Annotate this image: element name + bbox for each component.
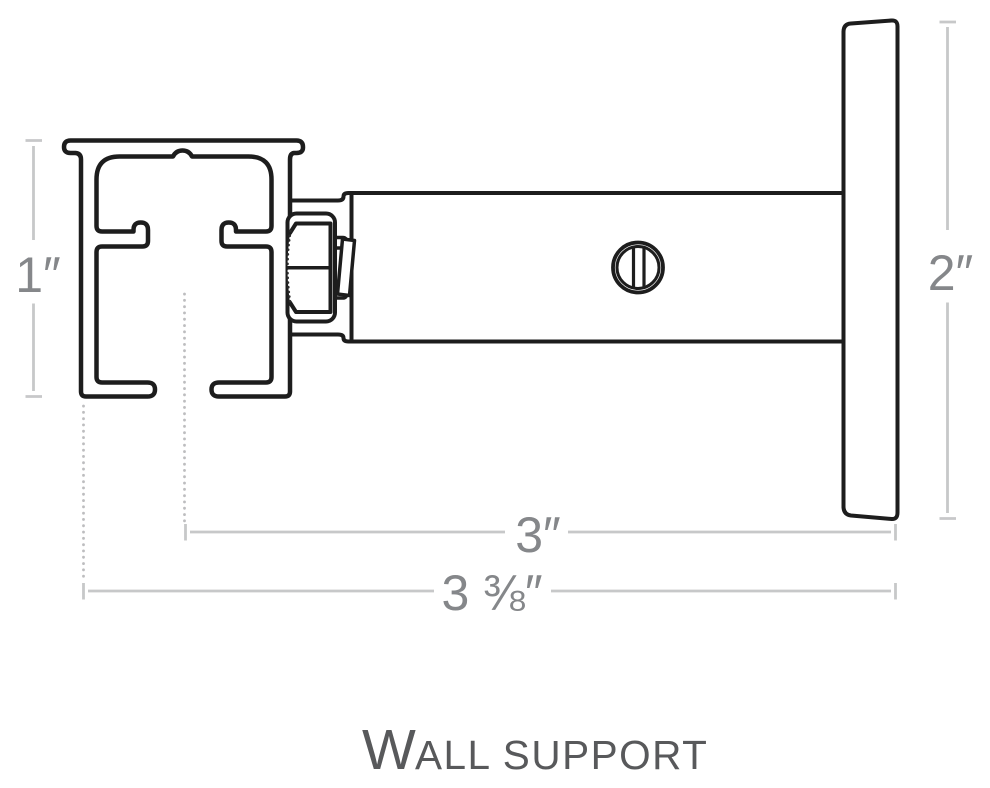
wall-support-technical-drawing: 1″ 2″ 3″ 3 ⅜″ W ALL SUPPORT — [0, 0, 990, 788]
arm-bottom-edge — [289, 335, 845, 342]
rail-outline — [64, 141, 303, 397]
dim-label-plate-height: 2″ — [928, 245, 974, 301]
bolt-shaft — [338, 239, 355, 296]
wall-plate-outline — [844, 20, 898, 519]
adjustment-screw — [613, 243, 663, 293]
arm-top-edge — [289, 193, 845, 201]
dim-label-rail-height: 1″ — [15, 247, 61, 303]
dim-label-arm-projection: 3″ — [515, 507, 561, 563]
screw-head-outer — [613, 243, 663, 293]
bolt-assembly — [288, 214, 355, 322]
wall-plate — [844, 20, 898, 519]
drawing-title: W ALL SUPPORT — [362, 718, 708, 782]
drawing-canvas: 1″ 2″ 3″ 3 ⅜″ W ALL SUPPORT — [0, 0, 990, 788]
rail-profile — [64, 141, 303, 397]
title-lead-letter: W — [362, 718, 416, 782]
dim-label-overall-projection: 3 ⅜″ — [441, 565, 542, 621]
support-arm — [289, 193, 845, 342]
title-rest-text: ALL SUPPORT — [415, 732, 708, 778]
